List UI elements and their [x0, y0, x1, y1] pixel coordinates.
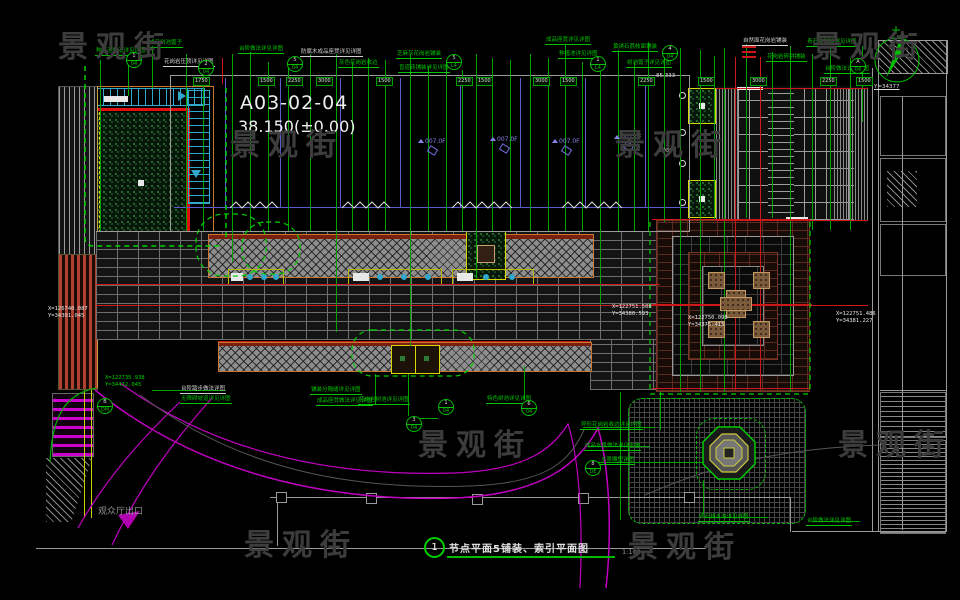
column-marker [366, 493, 377, 504]
green-grid-line [600, 64, 601, 306]
annotation-label: 成品水景做法详见水施 [584, 443, 641, 451]
building-line [880, 390, 946, 391]
dimension-box: 1500 [698, 77, 715, 86]
annotation-label: 铺装分隔缝详见详图 [310, 387, 362, 395]
annotation-label: 盲道砖铺装详见详图 [398, 65, 450, 73]
coordinate-label: X=122751.486Y=34381.227 [836, 311, 876, 325]
green-grid-line [410, 54, 411, 346]
wall-strip-upper [58, 86, 98, 256]
green-grid-line [772, 52, 773, 218]
fixture-strip-3 [452, 269, 534, 285]
watermark-text: 景观街 [615, 120, 729, 164]
coordinate-label: X=126740.087Y=34301.045 [48, 306, 88, 320]
annotation-label: 防腐木成品座凳详见详图 [300, 49, 363, 57]
green-grid-line [620, 392, 621, 520]
elevation-flag-icon [418, 139, 424, 143]
partition-line [585, 78, 586, 207]
right-room-3 [880, 224, 946, 276]
planter-left-fill [96, 112, 186, 238]
sheet-index-circle: 1 [424, 537, 445, 558]
green-grid-line [368, 58, 369, 231]
sheet-title: 节点平面5铺装、索引平面图 [449, 540, 589, 555]
red-tick-mark [742, 51, 756, 53]
annotation-label: 自然面花岗岩铺装 [742, 38, 788, 46]
green-grid-line [186, 54, 187, 231]
courtyard-center-cross-h [720, 297, 752, 311]
detail-callout: BDM [97, 398, 113, 414]
annotation-label: 无障碍坡道详见详图 [180, 396, 232, 404]
green-grid-line [660, 392, 661, 430]
red-axis-line [760, 57, 761, 390]
coordinate-label: X=122750.098Y=34375.415 [688, 315, 728, 329]
detail-callout: 1L4 [590, 56, 606, 72]
dimension-box: 1750 [193, 77, 210, 86]
partition-line [520, 78, 521, 207]
octagon-canopy-outline [696, 418, 766, 490]
partition-line [225, 78, 226, 207]
building-line [270, 497, 790, 498]
right-room-2 [880, 158, 946, 222]
red-axis-line [222, 58, 223, 84]
tree-pit-lower-2 [415, 345, 440, 374]
red-axis-line [716, 220, 868, 221]
dimension-box: 2250 [286, 77, 303, 86]
courtyard-feature-square [753, 321, 770, 338]
green-grid-line [582, 62, 583, 231]
partition-line [400, 78, 401, 207]
planter-box-right-1 [688, 88, 716, 124]
room-elevation-label: 007.0F [490, 136, 518, 143]
red-axis-line [652, 388, 810, 389]
green-grid-line [352, 62, 353, 231]
building-line [170, 75, 690, 76]
detail-callout: 204 [198, 60, 214, 76]
building-line [170, 75, 171, 231]
ramp-white-bar [104, 96, 128, 102]
green-grid-line [680, 48, 681, 392]
courtyard-feature-square [753, 272, 770, 289]
elevation-flag-icon [552, 139, 558, 143]
building-line [792, 531, 946, 532]
detail-callout: 604 [521, 400, 537, 416]
dimension-box: 1500 [856, 77, 873, 86]
sheet-title-underline [447, 556, 615, 558]
plan-title-code: A03-02-04 [240, 92, 348, 114]
annotation-label: 异形花岗岩收边详见详图 [580, 422, 643, 430]
dimension-box: 2250 [820, 77, 837, 86]
watermark-text: 景观街 [628, 522, 742, 566]
green-grid-line [700, 50, 701, 392]
green-grid-line [462, 70, 463, 231]
paving-brick-right-low [590, 340, 660, 390]
red-tick-mark [742, 46, 756, 48]
annotation-label: 台阶做法详见详图 [806, 518, 852, 526]
green-grid-line [203, 62, 204, 231]
annotation-label: 成品座凳详见详图 [545, 37, 591, 45]
ramp-arrow-down-icon [191, 170, 201, 178]
green-grid-line [128, 64, 129, 96]
annotation-label: 树池篦子详见详图 [626, 60, 672, 68]
exit-label: 观众厅出口 [98, 504, 143, 517]
light-dot-icon [483, 274, 489, 280]
partition-line [174, 207, 688, 208]
stairs-magenta [52, 393, 94, 457]
coordinate-label: X=122751.508Y=34380.593 [612, 304, 652, 318]
watermark-text: 景观街 [812, 22, 926, 66]
detail-callout: 8DE [585, 460, 601, 476]
watermark-text: 景观街 [838, 420, 952, 464]
dimension-box: 3000 [533, 77, 550, 86]
door-swing-icon [561, 145, 572, 156]
planter-left-white-marker [138, 180, 144, 186]
room-elevation-label: 007.0F [552, 138, 580, 145]
light-dot-icon [273, 274, 279, 280]
right-room-1 [880, 96, 946, 156]
stage: A03-02-04 38.150(±0.00) 1 节点平面5铺装、索引平面图 … [0, 0, 960, 600]
green-grid-line [476, 54, 477, 278]
door-swing-icon [499, 143, 510, 154]
light-dot-icon [425, 274, 431, 280]
stair-ramp-right [188, 90, 210, 204]
red-axis-line [218, 341, 590, 342]
coordinate-label: X=122735.938Y=34432.045 [105, 375, 145, 389]
building-line [790, 497, 791, 532]
elevation-flag-icon [490, 137, 496, 141]
north-coord-label: Y=34377 [874, 84, 899, 90]
tree-pit-lower-1-dot [400, 356, 405, 361]
red-axis-line [735, 57, 736, 390]
red-tick-mark [742, 56, 756, 58]
planter-box-right-2 [688, 180, 716, 218]
annotation-label: 花岗岩碎拼铺装 [766, 54, 807, 62]
light-dot-icon [377, 274, 383, 280]
annotation-label: 台阶踏步做法详图 [180, 386, 226, 394]
annotation-label: 灰色花岗岩收边 [338, 60, 379, 68]
green-grid-line [830, 48, 831, 230]
fixture-strip-1 [228, 269, 284, 285]
yellow-edge-line-2 [91, 390, 92, 518]
dimension-box: 2250 [456, 77, 473, 86]
tree-pit-lower-2-dot [424, 356, 429, 361]
fixture-pad [231, 273, 243, 281]
wall-strip-lower [58, 254, 98, 390]
light-dot-icon [509, 274, 515, 280]
green-grid-line [408, 374, 409, 416]
dimension-box: 1500 [376, 77, 393, 86]
watermark-text: 景观街 [230, 120, 344, 164]
column-marker [276, 492, 287, 503]
detail-callout: 5L4 [446, 54, 462, 70]
green-grid-line [524, 366, 525, 400]
green-grid-line [812, 54, 813, 230]
annotation-label: 花岗岩树池详见详图 [358, 397, 410, 405]
annotation-label: 台阶做法详见详图 [238, 46, 284, 54]
annotation-label: 卵石排水沟详见详图 [698, 514, 750, 522]
red-axis-line [96, 305, 868, 306]
light-dot-icon [401, 274, 407, 280]
watermark-text: 景观街 [244, 520, 358, 564]
green-grid-line [100, 60, 101, 231]
watermark-text: 景观街 [418, 420, 532, 464]
light-dot-icon [261, 274, 267, 280]
detail-callout: 104 [438, 399, 454, 415]
band-upper-red-strip [209, 235, 593, 239]
fixture-pad [353, 273, 369, 281]
room-elevation-label: 007.0F [418, 138, 446, 145]
annotation-label: 黄锈石荔枝面铺装 [612, 44, 658, 52]
tree-pit-upper-core [477, 245, 495, 263]
detail-callout: 404 [662, 45, 678, 61]
green-grid-line [746, 44, 747, 218]
dimension-box: 1500 [258, 77, 275, 86]
annotation-label: 水景雕塑详图 [600, 457, 635, 465]
column-marker [578, 493, 589, 504]
watermark-text: 景观街 [58, 22, 172, 66]
level-label-left: 85.333 [656, 73, 675, 79]
building-line [902, 96, 903, 530]
dimension-box: 2250 [638, 77, 655, 86]
tree-pit-lower-1 [391, 345, 416, 374]
detail-callout: 504 [287, 56, 303, 72]
green-grid-line [446, 60, 447, 231]
fixture-pad [457, 273, 473, 281]
column-marker [684, 492, 695, 503]
dimension-box: 1500 [560, 77, 577, 86]
courtyard-feature-square [708, 272, 725, 289]
yellow-edge-line-1 [84, 390, 85, 518]
column-marker [472, 494, 483, 505]
stone-paving-area [716, 86, 868, 222]
partition-line [460, 78, 461, 207]
hatch-wedge [46, 458, 92, 522]
road-branch-2 [112, 398, 212, 545]
annotation-label: 芝麻灰花岗岩铺装 [396, 51, 442, 59]
red-axis-line [716, 88, 868, 89]
planter-left-red-top-border [93, 108, 190, 111]
red-axis-line [96, 284, 660, 285]
dimension-box: 3000 [750, 77, 767, 86]
dimension-box: 1500 [476, 77, 493, 86]
sheet-index-number: 1 [431, 542, 437, 553]
building-line [36, 548, 706, 549]
dimension-box: 3000 [316, 77, 333, 86]
green-grid-line [510, 60, 511, 231]
green-grid-line [703, 480, 704, 514]
green-grid-line [530, 54, 531, 231]
light-dot-icon [247, 274, 253, 280]
fixture-strip-2 [348, 269, 442, 285]
green-grid-line [850, 58, 851, 230]
ramp-arrow-right-icon [178, 91, 186, 101]
